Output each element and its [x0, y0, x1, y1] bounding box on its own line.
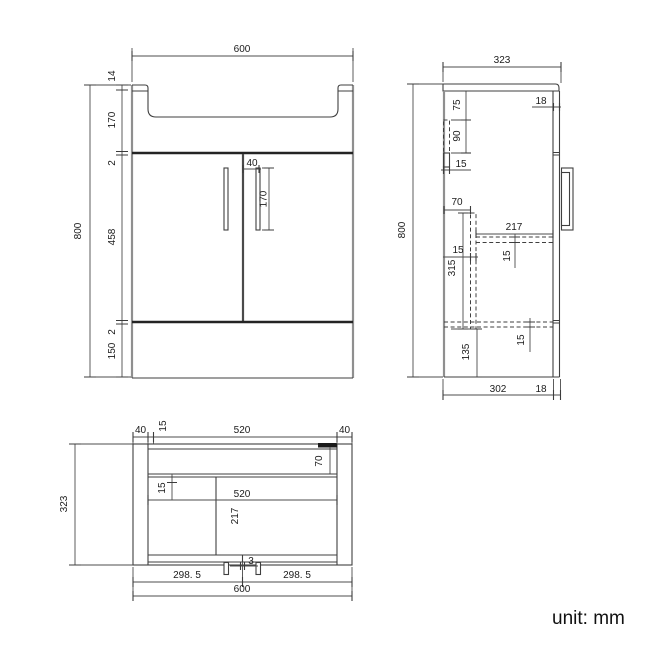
side-dim-shelf-depth: 217: [476, 222, 553, 238]
front-dim-segments: 14 170 2 458 2 150: [107, 70, 128, 377]
left-door-handle: [224, 168, 228, 230]
side-dim-shelf-thickness: 15: [502, 234, 520, 268]
side-dim-depth: 323: [443, 55, 561, 83]
dim-label: 15: [502, 250, 513, 262]
dim-label: 15: [158, 420, 169, 432]
dim-label: 600: [234, 584, 251, 595]
dim-label: 15: [157, 482, 168, 494]
dim-label: 90: [452, 130, 463, 142]
vanity-dimension-drawing: 600 800 14 170 2 458 2 150 40: [0, 0, 650, 650]
dim-label: 800: [73, 222, 84, 239]
plan-dim-width: 600: [133, 584, 352, 601]
dim-label: 458: [107, 228, 118, 245]
plan-dim-inner-width: 520: [148, 489, 337, 505]
side-view: 323 800 18 75 90 15: [397, 55, 573, 400]
dim-label: 15: [452, 245, 464, 256]
plan-dim-depth: 323: [59, 444, 133, 565]
dim-label: 298. 5: [283, 570, 311, 581]
plan-dim-rail-depth: 70: [314, 447, 335, 474]
side-dim-bottom-depths: 302 18: [443, 379, 561, 400]
dim-label: 70: [314, 455, 325, 467]
dim-label: 323: [494, 55, 511, 66]
dim-label: 800: [397, 221, 408, 238]
side-dim-door-thickness-top: 18: [532, 96, 561, 111]
front-dim-width: 600: [132, 44, 353, 82]
side-dim-panel-thickness: 15: [443, 245, 478, 261]
plan-view: 40 15 520 40 70 15 520 217: [59, 420, 352, 601]
dim-label: 40: [135, 425, 147, 436]
front-view: 600 800 14 170 2 458 2 150 40: [73, 44, 353, 378]
side-dim-panel-height: 315: [447, 213, 470, 329]
dim-label: 18: [535, 384, 547, 395]
dim-label: 2: [107, 329, 118, 335]
dim-label: 3: [248, 556, 254, 567]
dim-label: 170: [259, 190, 270, 207]
dim-label: 217: [230, 507, 241, 524]
dim-label: 18: [535, 96, 547, 107]
side-dim-height: 800: [397, 84, 443, 377]
dim-label: 298. 5: [173, 570, 201, 581]
plan-side-panels: [148, 444, 337, 565]
dim-label: 520: [234, 425, 251, 436]
unit-note: unit: mm: [552, 608, 625, 629]
plan-dim-top-row: 40 15 520 40: [133, 420, 352, 444]
dim-label: 600: [234, 44, 251, 55]
side-dim-bottom-thickness: 15: [516, 318, 535, 352]
technical-drawing-page: 600 800 14 170 2 458 2 150 40: [0, 0, 650, 650]
side-dim-plinth-height: 135: [461, 329, 482, 377]
dim-label: 75: [452, 99, 463, 111]
door-split-gaps: [553, 153, 560, 324]
dim-label: 323: [59, 495, 70, 512]
dim-label: 15: [516, 334, 527, 346]
dim-label: 135: [461, 343, 472, 360]
dim-label: 40: [246, 158, 258, 169]
plan-dim-door-gap: 3: [230, 556, 258, 570]
side-dim-bracket-offset: 75: [451, 91, 471, 120]
dim-label: 40: [339, 425, 351, 436]
shelf-hidden: [476, 237, 553, 243]
dim-label: 170: [107, 111, 118, 128]
basin-profile: [132, 85, 353, 117]
dim-label: 2: [107, 160, 118, 166]
dim-label: 15: [455, 159, 467, 170]
side-dim-panel-offset: 70: [444, 197, 471, 214]
plan-front-band: [148, 555, 337, 562]
side-front-face: [553, 91, 560, 377]
dim-label: 150: [107, 342, 118, 359]
countertop-profile: [443, 84, 559, 91]
plan-dim-shelf-thickness: 15: [157, 474, 177, 500]
bottom-panel-hidden: [444, 322, 553, 327]
dim-label: 302: [490, 384, 507, 395]
dim-label: 315: [447, 259, 458, 276]
internal-partition-hidden: [471, 213, 477, 329]
side-handle-inner: [562, 173, 570, 226]
dim-label: 217: [506, 222, 523, 233]
plan-back-rail: [148, 449, 337, 477]
dim-label: 14: [107, 70, 118, 82]
side-dim-bracket-height: 90: [451, 120, 471, 153]
plan-right-handle: [256, 563, 261, 575]
dim-label: 520: [234, 489, 251, 500]
plan-section-mark: [318, 443, 337, 448]
plan-left-handle: [224, 563, 229, 575]
front-dim-handle-length: 170: [259, 168, 275, 230]
dim-label: 70: [451, 197, 463, 208]
